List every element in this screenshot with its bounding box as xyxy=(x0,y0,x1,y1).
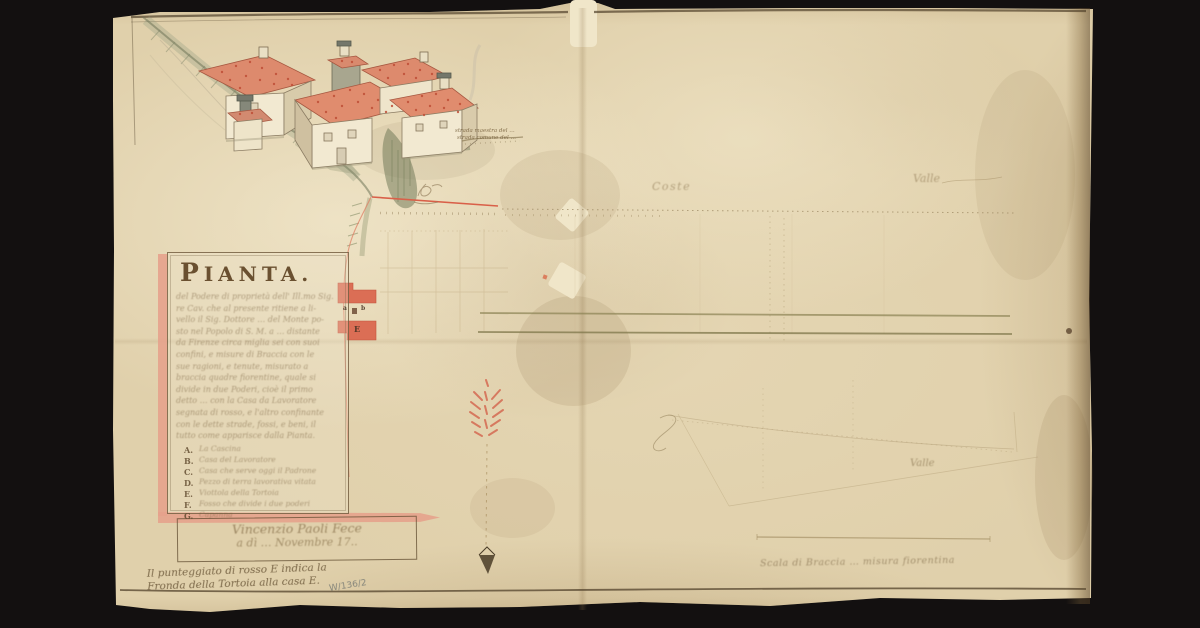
paper-stain xyxy=(500,150,620,240)
legend-key: F. xyxy=(184,500,194,510)
map-legend: A. La Cascina B. Casa del Lavoratore C. … xyxy=(184,445,344,522)
legend-row: B. Casa del Lavoratore xyxy=(184,456,344,466)
vertical-fold-crease xyxy=(578,8,587,610)
legend-label: Pezzo di terra lavorativa vitata xyxy=(199,478,316,488)
plan-marker-a: a xyxy=(343,305,347,312)
cartouche-line: re Cav. che al presente ritiene a li- xyxy=(176,303,342,315)
legend-label: Viottola della Tortoia xyxy=(199,489,279,499)
cartouche-line: detto … con la Casa da Lavoratore xyxy=(176,395,342,407)
legend-key: E. xyxy=(184,489,194,499)
legend-label: Casa del Lavoratore xyxy=(199,456,276,466)
legend-row: C. Casa che serve oggi il Padrone xyxy=(184,467,344,477)
legend-row: D. Pezzo di terra lavorativa vitata xyxy=(184,478,344,488)
legend-label: La Cascina xyxy=(199,445,241,455)
sheet-right-edge-shadow xyxy=(1066,8,1090,604)
cartouche-description: del Podere di proprietà dell' Ill.mo Sig… xyxy=(176,291,342,442)
cartouche-line: confini, e misure di Braccia con le xyxy=(176,349,342,361)
cartouche-line: da Firenze circa miglia sei con suoi xyxy=(176,337,342,349)
road-label-1: strada maestra del … xyxy=(455,128,540,134)
paper-stain xyxy=(470,478,555,538)
legend-row: F. Fosso che divide i due poderi xyxy=(184,500,344,510)
cartouche-line: del Podere di proprietà dell' Ill.mo Sig… xyxy=(176,291,342,303)
plan-marker-e: E xyxy=(354,324,360,334)
paper-stain xyxy=(516,296,631,406)
field-label-coste: Coste xyxy=(652,180,691,193)
legend-key: A. xyxy=(184,445,194,455)
plan-marker-b: b xyxy=(361,305,365,312)
legend-key: D. xyxy=(184,478,194,488)
title-cartouche: PIANTA. del Podere di proprietà dell' Il… xyxy=(167,252,349,514)
paper-stain xyxy=(975,70,1075,280)
cartouche-line: vello il Sig. Dottore … del Monte po- xyxy=(176,314,342,326)
cartouche-line: tutto come apparisce dalla Pianta. xyxy=(176,430,342,442)
field-label-valle-top: Valle xyxy=(913,172,940,185)
legend-key: B. xyxy=(184,456,194,466)
legend-row: A. La Cascina xyxy=(184,445,344,455)
legend-label: Casa che serve oggi il Padrone xyxy=(199,467,316,477)
cartouche-line: divide in due Poderi, cioè il primo xyxy=(176,384,342,396)
signature-line-2: a dì … Novembre 17.. xyxy=(178,535,416,550)
legend-row: E. Viottola della Tortoia xyxy=(184,489,344,499)
legend-key: C. xyxy=(184,467,194,477)
cartouche-line: sto nel Popolo di S. M. a … distante xyxy=(176,326,342,338)
road-label-2: strada comune del … xyxy=(457,135,542,141)
cartouche-line: braccia quadre fiorentine, quale si xyxy=(176,372,342,384)
field-label-valle-bottom: Valle xyxy=(910,458,935,469)
page-title: PIANTA. xyxy=(180,258,340,287)
cartouche-line: segnata di rosso, e l'altro confinante xyxy=(176,407,342,419)
legend-label: Fosso che divide i due poderi xyxy=(199,500,310,510)
cartouche-line: sue ragioni, e tenute, misurato a xyxy=(176,361,342,373)
cartouche-pink-band-left xyxy=(158,254,167,516)
surveyor-signature-box: Vincenzio Paoli Fece a dì … Novembre 17.… xyxy=(177,516,417,563)
screenshot-canvas: PIANTA. del Podere di proprietà dell' Il… xyxy=(0,0,1200,628)
cartouche-line: con le dette strade, fossi, e beni, il xyxy=(176,419,342,431)
